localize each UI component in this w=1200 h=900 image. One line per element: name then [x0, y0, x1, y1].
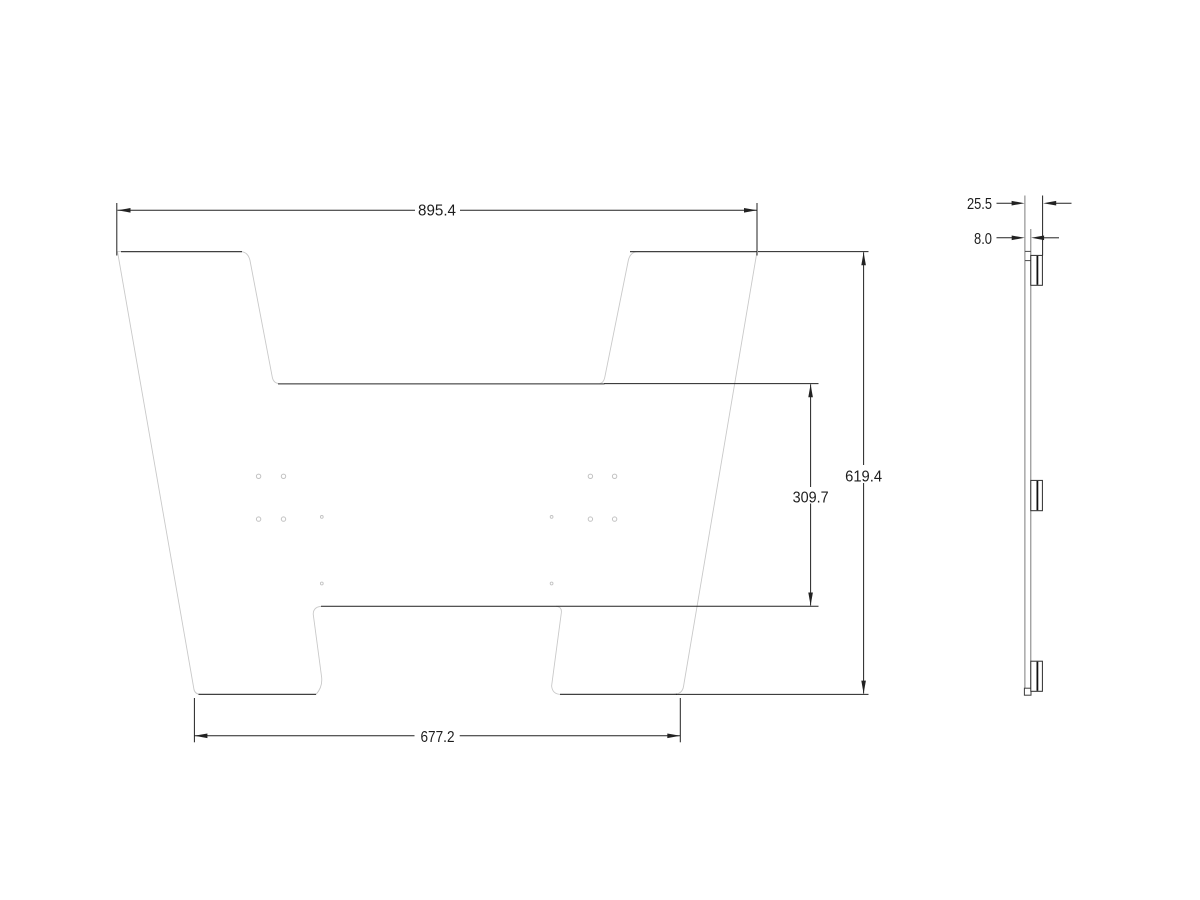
svg-text:8.0: 8.0: [974, 231, 992, 248]
svg-text:895.4: 895.4: [418, 203, 456, 220]
svg-text:25.5: 25.5: [967, 196, 992, 213]
svg-text:309.7: 309.7: [793, 489, 829, 506]
svg-text:619.4: 619.4: [845, 468, 882, 485]
svg-text:677.2: 677.2: [421, 729, 455, 746]
